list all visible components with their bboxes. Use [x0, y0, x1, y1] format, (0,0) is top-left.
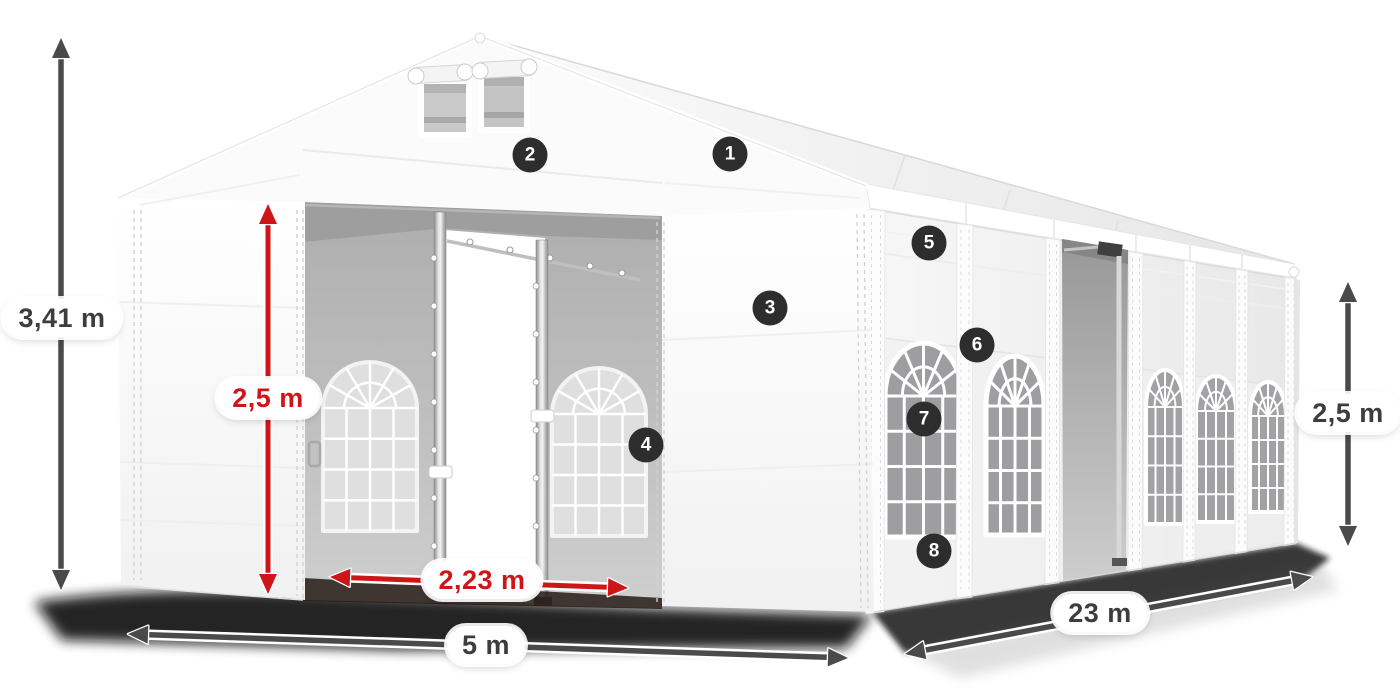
tent-interior — [303, 202, 662, 609]
callout-badge-1[interactable]: 1 — [713, 137, 748, 172]
front-width-value: 5 m — [462, 630, 510, 660]
dimension-label-front-width: 5 m — [447, 626, 525, 664]
side-door-opening — [1062, 239, 1128, 581]
door-width-value: 2,23 m — [438, 565, 525, 595]
callout-badge-8[interactable]: 8 — [917, 534, 952, 569]
length-value: 23 m — [1068, 598, 1132, 628]
callout-badge-7[interactable]: 7 — [907, 402, 942, 437]
total-height-value: 3,41 m — [18, 303, 105, 333]
dimension-label-door-height: 2,5 m — [217, 379, 319, 417]
side-height-value: 2,5 m — [1312, 398, 1384, 428]
door-height-value: 2,5 m — [232, 383, 304, 413]
dimension-label-total-height: 3,41 m — [3, 299, 120, 337]
callout-badge-6[interactable]: 6 — [960, 328, 995, 363]
dimension-label-length: 23 m — [1053, 594, 1147, 632]
callout-badge-5[interactable]: 5 — [912, 226, 947, 261]
tent-illustration — [0, 0, 1400, 700]
callout-badge-2[interactable]: 2 — [513, 138, 548, 173]
dimension-label-side-height: 2,5 m — [1297, 394, 1399, 432]
tent-dimension-diagram: 3,41 m 2,5 m 2,23 m 5 m 23 m 2,5 m 1 2 3… — [0, 0, 1400, 700]
callout-badge-4[interactable]: 4 — [629, 428, 664, 463]
callout-badge-3[interactable]: 3 — [753, 291, 788, 326]
dimension-label-door-width: 2,23 m — [423, 561, 540, 599]
